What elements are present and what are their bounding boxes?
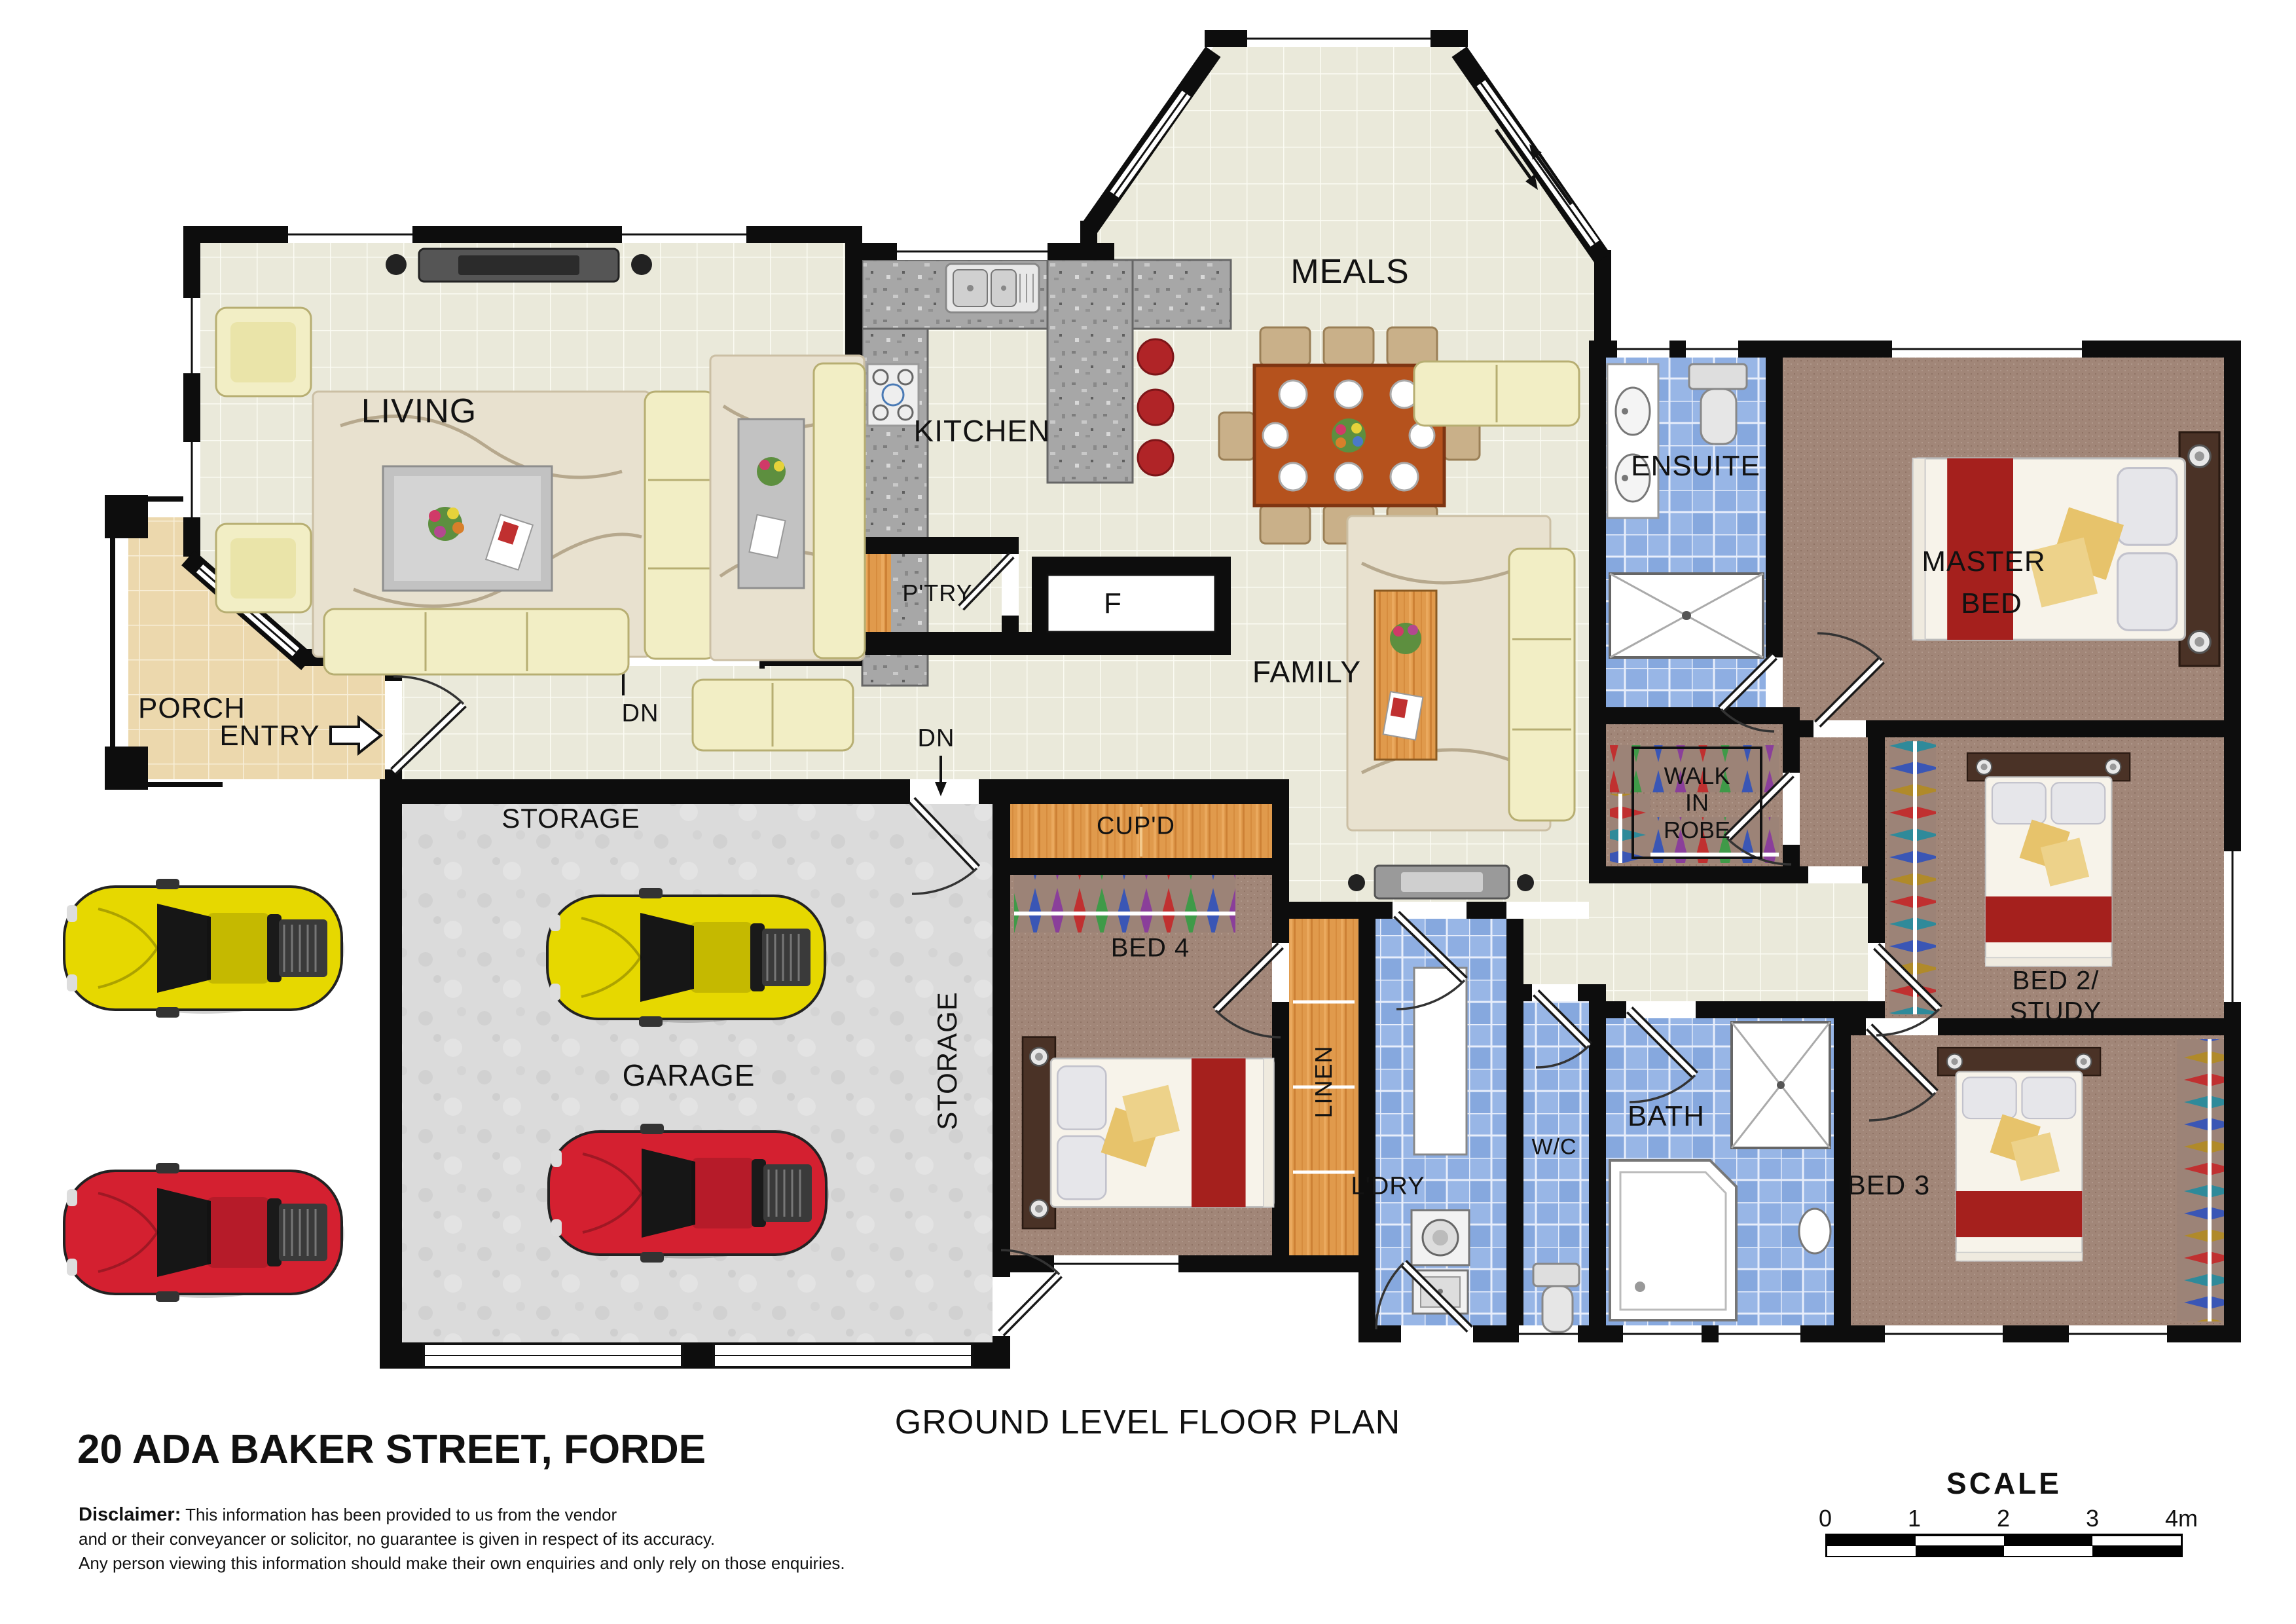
laundry-label: L'DRY (1351, 1173, 1425, 1201)
bed4-label: BED 4 (1111, 934, 1190, 963)
bath-basin (1799, 1209, 1831, 1253)
bed4-bed (1023, 1037, 1274, 1228)
car-yellow-garage (547, 888, 828, 1027)
car-yellow-driveway (64, 879, 344, 1018)
kitchen-label: KITCHEN (914, 413, 1051, 449)
sofa (324, 609, 629, 674)
car-red-garage (549, 1124, 829, 1263)
family-label: FAMILY (1252, 654, 1361, 690)
cupboard-label: CUP'D (1097, 813, 1175, 841)
ensuite-toilet (1689, 364, 1747, 389)
corridor-floor (1589, 883, 1868, 1001)
vestibule-floor (1800, 737, 1868, 866)
disclaimer-label: Disclaimer: (79, 1504, 181, 1525)
disclaimer-line-3: Any person viewing this information shou… (79, 1551, 845, 1576)
sofa (645, 392, 716, 659)
down-label-2: DN (918, 725, 955, 753)
car-red-driveway (64, 1163, 344, 1302)
scale-tick-0: 0 (1819, 1505, 1832, 1532)
speaker (386, 254, 407, 275)
bed3-label: BED 3 (1848, 1170, 1930, 1201)
speaker (1517, 874, 1534, 891)
disclaimer-text-1: This information has been provided to us… (185, 1505, 617, 1524)
speaker (1348, 874, 1365, 891)
stool (1138, 440, 1173, 475)
plan-title: GROUND LEVEL FLOOR PLAN (895, 1403, 1400, 1442)
bed2-label-line2: STUDY (2010, 997, 2102, 1027)
storage-side-label: STORAGE (932, 991, 963, 1130)
wc-label: W/C (1531, 1135, 1576, 1160)
sofa (814, 363, 865, 658)
scale-tick-3: 3 (2086, 1505, 2099, 1532)
scale-ticks: 0 1 2 3 4m (1825, 1505, 2183, 1534)
wir-line-3: ROBE (1664, 817, 1730, 843)
wc-toilet (1533, 1264, 1579, 1286)
scale-title: SCALE (1825, 1466, 2183, 1501)
living-label: LIVING (361, 392, 477, 431)
fridge-recess (1048, 575, 1215, 632)
garage-label: GARAGE (623, 1058, 756, 1093)
address-title: 20 ADA BAKER STREET, FORDE (77, 1426, 706, 1473)
fridge-label: F (1104, 587, 1122, 620)
stool (1138, 339, 1173, 375)
sofa (1509, 549, 1575, 821)
entry-label: ENTRY (219, 720, 319, 752)
pantry-shelf (862, 554, 891, 632)
speaker (631, 254, 652, 275)
bed2-bed (1967, 753, 2130, 967)
coffee-table (738, 419, 804, 588)
scale-bar-row-2 (1825, 1545, 2183, 1557)
bed2-label-line1: BED 2/ (2013, 967, 2100, 996)
scale-tick-1: 1 (1908, 1505, 1921, 1532)
bath-label: BATH (1628, 1100, 1705, 1133)
master-label-line1: MASTER (1922, 545, 2045, 578)
disclaimer-line-1: Disclaimer: This information has been pr… (79, 1503, 845, 1527)
meals-label: MEALS (1290, 252, 1409, 291)
wc-nook-floor (1523, 919, 1589, 984)
walk-in-robe-label: WALK IN ROBE (1631, 747, 1762, 859)
disclaimer-line-2: and or their conveyancer or solicitor, n… (79, 1527, 845, 1551)
pantry-label: P'TRY (902, 580, 972, 607)
ensuite-label: ENSUITE (1631, 450, 1760, 483)
wir-line-2: IN (1685, 789, 1709, 816)
scale-bar-row-1 (1825, 1534, 2183, 1545)
storage-top-label: STORAGE (501, 803, 640, 834)
scale-bar: SCALE 0 1 2 3 4m (1825, 1466, 2183, 1557)
bed3-bed (1938, 1048, 2100, 1261)
stool (1138, 390, 1173, 425)
wir-line-1: WALK (1664, 762, 1730, 789)
disclaimer: Disclaimer: This information has been pr… (79, 1503, 845, 1576)
master-label-line2: BED (1961, 587, 2022, 620)
scale-tick-2: 2 (1997, 1505, 2010, 1532)
down-label-1: DN (622, 700, 659, 728)
laundry-bench (1414, 968, 1467, 1154)
scale-tick-4: 4m (2165, 1505, 2198, 1532)
linen-label: LINEN (1310, 1045, 1338, 1118)
floor-plan-page: LIVING KITCHEN MEALS FAMILY P'TRY F CUP'… (0, 0, 2296, 1624)
